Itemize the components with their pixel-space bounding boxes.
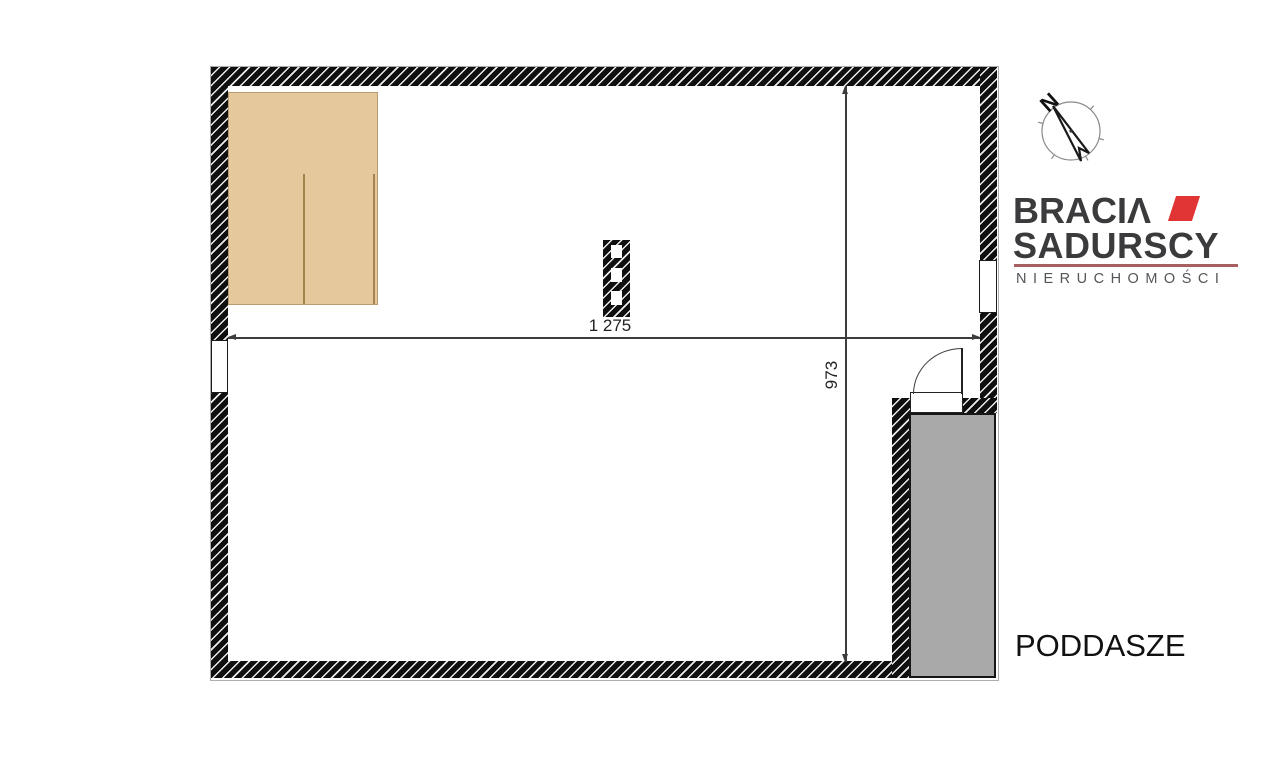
wardrobe-divider-line — [373, 174, 375, 304]
chimney-flue — [611, 245, 622, 258]
compass-needle — [1053, 106, 1089, 161]
door-threshold — [910, 392, 963, 413]
room-title: PODDASZE — [1015, 629, 1186, 663]
dimension-label-horizontal: 1 275 — [575, 317, 645, 335]
dimension-arrow-left — [228, 334, 236, 340]
dimension-arrow-right — [972, 334, 980, 340]
window-right — [979, 260, 997, 313]
wardrobe — [228, 92, 378, 305]
brand-line2: SADURSCY — [1013, 228, 1219, 264]
dimension-line-horizontal — [228, 337, 980, 339]
brand-tagline: NIERUCHOMOŚCI — [1016, 271, 1225, 287]
brand-divider — [1014, 264, 1238, 267]
chimney-flue — [611, 291, 622, 305]
wall-bottom — [211, 661, 909, 678]
wardrobe-divider-line — [303, 174, 305, 304]
dimension-arrow-bottom — [842, 654, 848, 662]
door-leaf — [961, 348, 963, 394]
wall-right — [980, 67, 997, 413]
brand-line1: BRACIΛ — [1013, 193, 1151, 229]
dimension-arrow-top — [842, 86, 848, 94]
wall-top — [211, 67, 997, 86]
stair-enclosure-left-wall — [892, 398, 909, 678]
compass-icon: N — [1033, 90, 1113, 170]
floor-plan-page: 1 275 973 N BRACIΛ SADURSCY NIERUCHOMOŚC… — [0, 0, 1280, 770]
chimney — [603, 240, 630, 317]
brand-accent-shape — [1168, 196, 1200, 221]
chimney-flue — [611, 268, 622, 282]
dimension-label-vertical: 973 — [823, 355, 849, 395]
staircase — [909, 413, 996, 678]
compass-center-dot — [1069, 129, 1072, 132]
window-left — [211, 340, 228, 393]
